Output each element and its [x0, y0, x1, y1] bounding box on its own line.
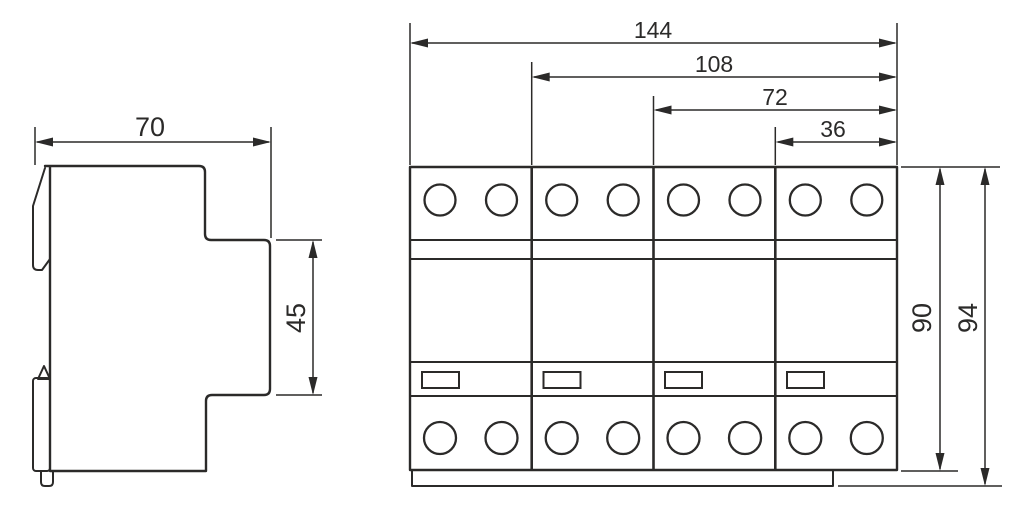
- terminal-screw: [851, 422, 883, 454]
- arrowhead-down-icon: [981, 468, 990, 486]
- arrowhead-down-icon: [309, 377, 318, 395]
- side-view-outline: [45, 166, 270, 471]
- arrowhead-right-icon: [879, 138, 897, 147]
- terminal-screw: [730, 185, 761, 216]
- arrowhead-right-icon: [879, 73, 897, 82]
- terminal-screw: [668, 185, 699, 216]
- terminal-screw: [486, 185, 517, 216]
- dimension-drawing-svg: 70 45: [0, 0, 1024, 507]
- dimension-36: 36: [775, 116, 897, 165]
- arrowhead-right-icon: [253, 138, 271, 147]
- arrowhead-left-icon: [410, 39, 428, 48]
- terminal-screw: [546, 422, 578, 454]
- din-clip-lower: [33, 378, 50, 471]
- terminal-screw: [668, 422, 700, 454]
- arrowhead-right-icon: [879, 106, 897, 115]
- dim-label-108: 108: [695, 51, 733, 77]
- din-clip-latch-tab: [41, 471, 53, 486]
- status-window: [544, 372, 581, 388]
- arrowhead-up-icon: [981, 167, 990, 185]
- arrowhead-left-icon: [532, 73, 550, 82]
- terminal-screw: [851, 185, 882, 216]
- din-clip-upper: [33, 168, 50, 270]
- arrowhead-up-icon: [936, 167, 945, 185]
- arrowhead-up-icon: [309, 240, 318, 258]
- arrowhead-left-icon: [775, 138, 793, 147]
- status-window: [787, 372, 824, 388]
- terminal-screw: [790, 185, 821, 216]
- mounting-rail: [412, 470, 833, 486]
- dim-label-144: 144: [634, 17, 673, 43]
- arrowhead-left-icon: [654, 106, 672, 115]
- dim-label-70: 70: [135, 112, 165, 142]
- terminal-screw: [608, 185, 639, 216]
- side-view: 70 45: [33, 112, 322, 486]
- terminal-screw: [546, 185, 577, 216]
- dimension-45: 45: [276, 240, 322, 395]
- dim-label-94: 94: [953, 303, 983, 333]
- terminal-screw: [607, 422, 639, 454]
- terminal-screw: [425, 185, 456, 216]
- arrowhead-right-icon: [879, 39, 897, 48]
- dim-label-90: 90: [907, 303, 937, 333]
- front-view: 144 108 72: [410, 17, 1002, 486]
- status-window: [422, 372, 459, 388]
- dim-label-72: 72: [762, 84, 788, 110]
- arrowhead-left-icon: [35, 138, 53, 147]
- dim-label-36: 36: [820, 116, 846, 142]
- terminal-screw: [789, 422, 821, 454]
- status-window: [665, 372, 702, 388]
- terminal-screw: [486, 422, 518, 454]
- arrowhead-down-icon: [936, 453, 945, 471]
- technical-dimension-drawing: 70 45: [0, 0, 1024, 507]
- terminal-screw: [729, 422, 761, 454]
- dimension-108: 108: [532, 51, 897, 165]
- terminal-screw: [424, 422, 456, 454]
- dim-label-45: 45: [281, 303, 311, 333]
